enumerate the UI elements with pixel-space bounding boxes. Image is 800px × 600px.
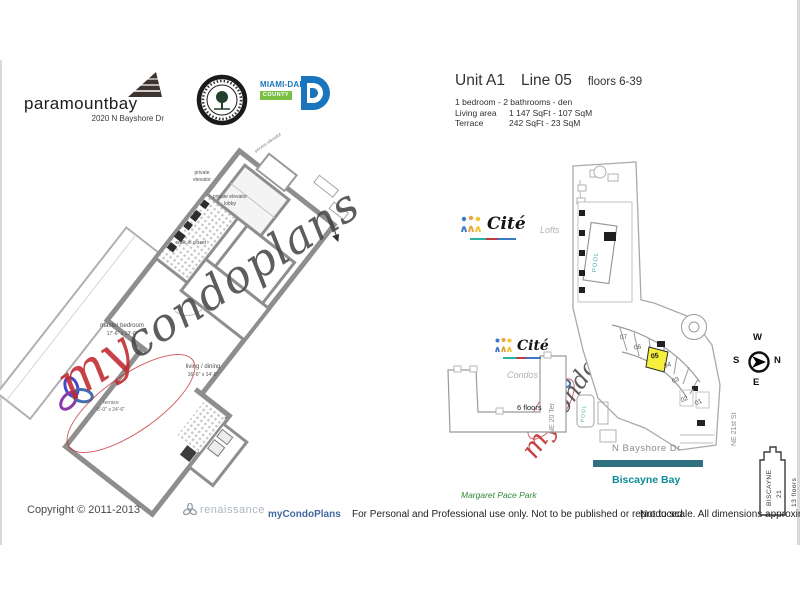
trillium-gray-icon bbox=[183, 503, 197, 517]
terrace-value: 242 SqFt - 23 SqM bbox=[509, 118, 580, 129]
living-area-value: 1 147 SqFt - 107 SqM bbox=[509, 108, 592, 119]
mycondoplans-brand: myCondoPlans bbox=[268, 509, 341, 520]
room-label-walk-in-closet: walk-in closet bbox=[172, 240, 210, 247]
page-edge-left bbox=[0, 60, 2, 545]
lofts-label: Lofts bbox=[540, 225, 560, 235]
line-number: Line 05 bbox=[521, 72, 572, 90]
city-of-miami-seal-icon bbox=[196, 74, 248, 126]
biscayne21-number: 21 bbox=[776, 490, 783, 498]
cite-logo-bar bbox=[503, 357, 541, 359]
brand-address: 2020 N Bayshore Dr bbox=[24, 114, 164, 123]
floors-range: floors 6-39 bbox=[588, 76, 642, 88]
scale-note: Not to scale. All dimensions approximate… bbox=[640, 509, 800, 520]
miami-dade-d-icon bbox=[300, 74, 330, 112]
biscayne21-floors: 13 floors bbox=[791, 478, 798, 507]
unit-number-07: 07 bbox=[620, 334, 628, 342]
compass-south: S bbox=[733, 355, 739, 366]
condos-floors-label: 6 floors bbox=[517, 403, 542, 412]
condos-label: Condos bbox=[507, 370, 538, 380]
cite-figures-icon bbox=[459, 212, 485, 234]
cite-logo-bar bbox=[470, 238, 516, 240]
room-label-private-elevator: private elevator bbox=[185, 170, 219, 183]
unit-number: Unit A1 bbox=[455, 72, 505, 90]
condo-plan-sheet: paramountbay 2020 N Bayshore Dr MIAMI-DA… bbox=[0, 0, 800, 600]
compass-west: W bbox=[753, 332, 762, 343]
usage-notice: For Personal and Professional use only. … bbox=[352, 509, 685, 520]
copyright-text: Copyright © 2011-2013 bbox=[27, 504, 140, 516]
unit-description: 1 bedroom - 2 bathrooms - den bbox=[455, 97, 642, 108]
unit-info: Unit A1 Line 05 floors 6-39 1 bedroom - … bbox=[455, 72, 642, 129]
unit-number-06: 06 bbox=[634, 344, 642, 352]
biscayne-bay-label: Biscayne Bay bbox=[612, 474, 680, 486]
cite-brand-text: Cité bbox=[487, 214, 526, 234]
compass-north: N bbox=[774, 355, 781, 366]
brand-logo-text: paramountbay bbox=[24, 94, 137, 114]
cite-figures-icon bbox=[493, 335, 515, 354]
road-label-ne-20-ter: NE 20 Ter bbox=[549, 403, 556, 434]
cite-brand-text: Cité bbox=[517, 338, 549, 354]
margaret-pace-park-label: Margaret Pace Park bbox=[461, 490, 537, 500]
renaissance-text: renaissance bbox=[200, 504, 265, 516]
cite-lofts-logo: Cité bbox=[459, 212, 526, 234]
bay-shoreline-bar bbox=[593, 460, 703, 467]
biscayne21-name: BISCAYNE bbox=[766, 470, 773, 506]
renaissance-logo: renaissance bbox=[183, 503, 265, 517]
living-area-label: Living area bbox=[455, 108, 509, 119]
road-label-ne-21-st: NE 21st St bbox=[731, 413, 738, 446]
county-text: COUNTY bbox=[260, 91, 292, 100]
road-label-n-bayshore-dr: N Bayshore Dr bbox=[612, 443, 681, 454]
compass-east: E bbox=[753, 377, 759, 388]
room-label-private-elevator-lobby: private elevator lobby bbox=[210, 194, 250, 207]
unit-number-05-highlighted: 05 bbox=[650, 352, 659, 360]
terrace-label: Terrace bbox=[455, 118, 509, 129]
cite-condos-logo: Cité bbox=[493, 335, 549, 354]
